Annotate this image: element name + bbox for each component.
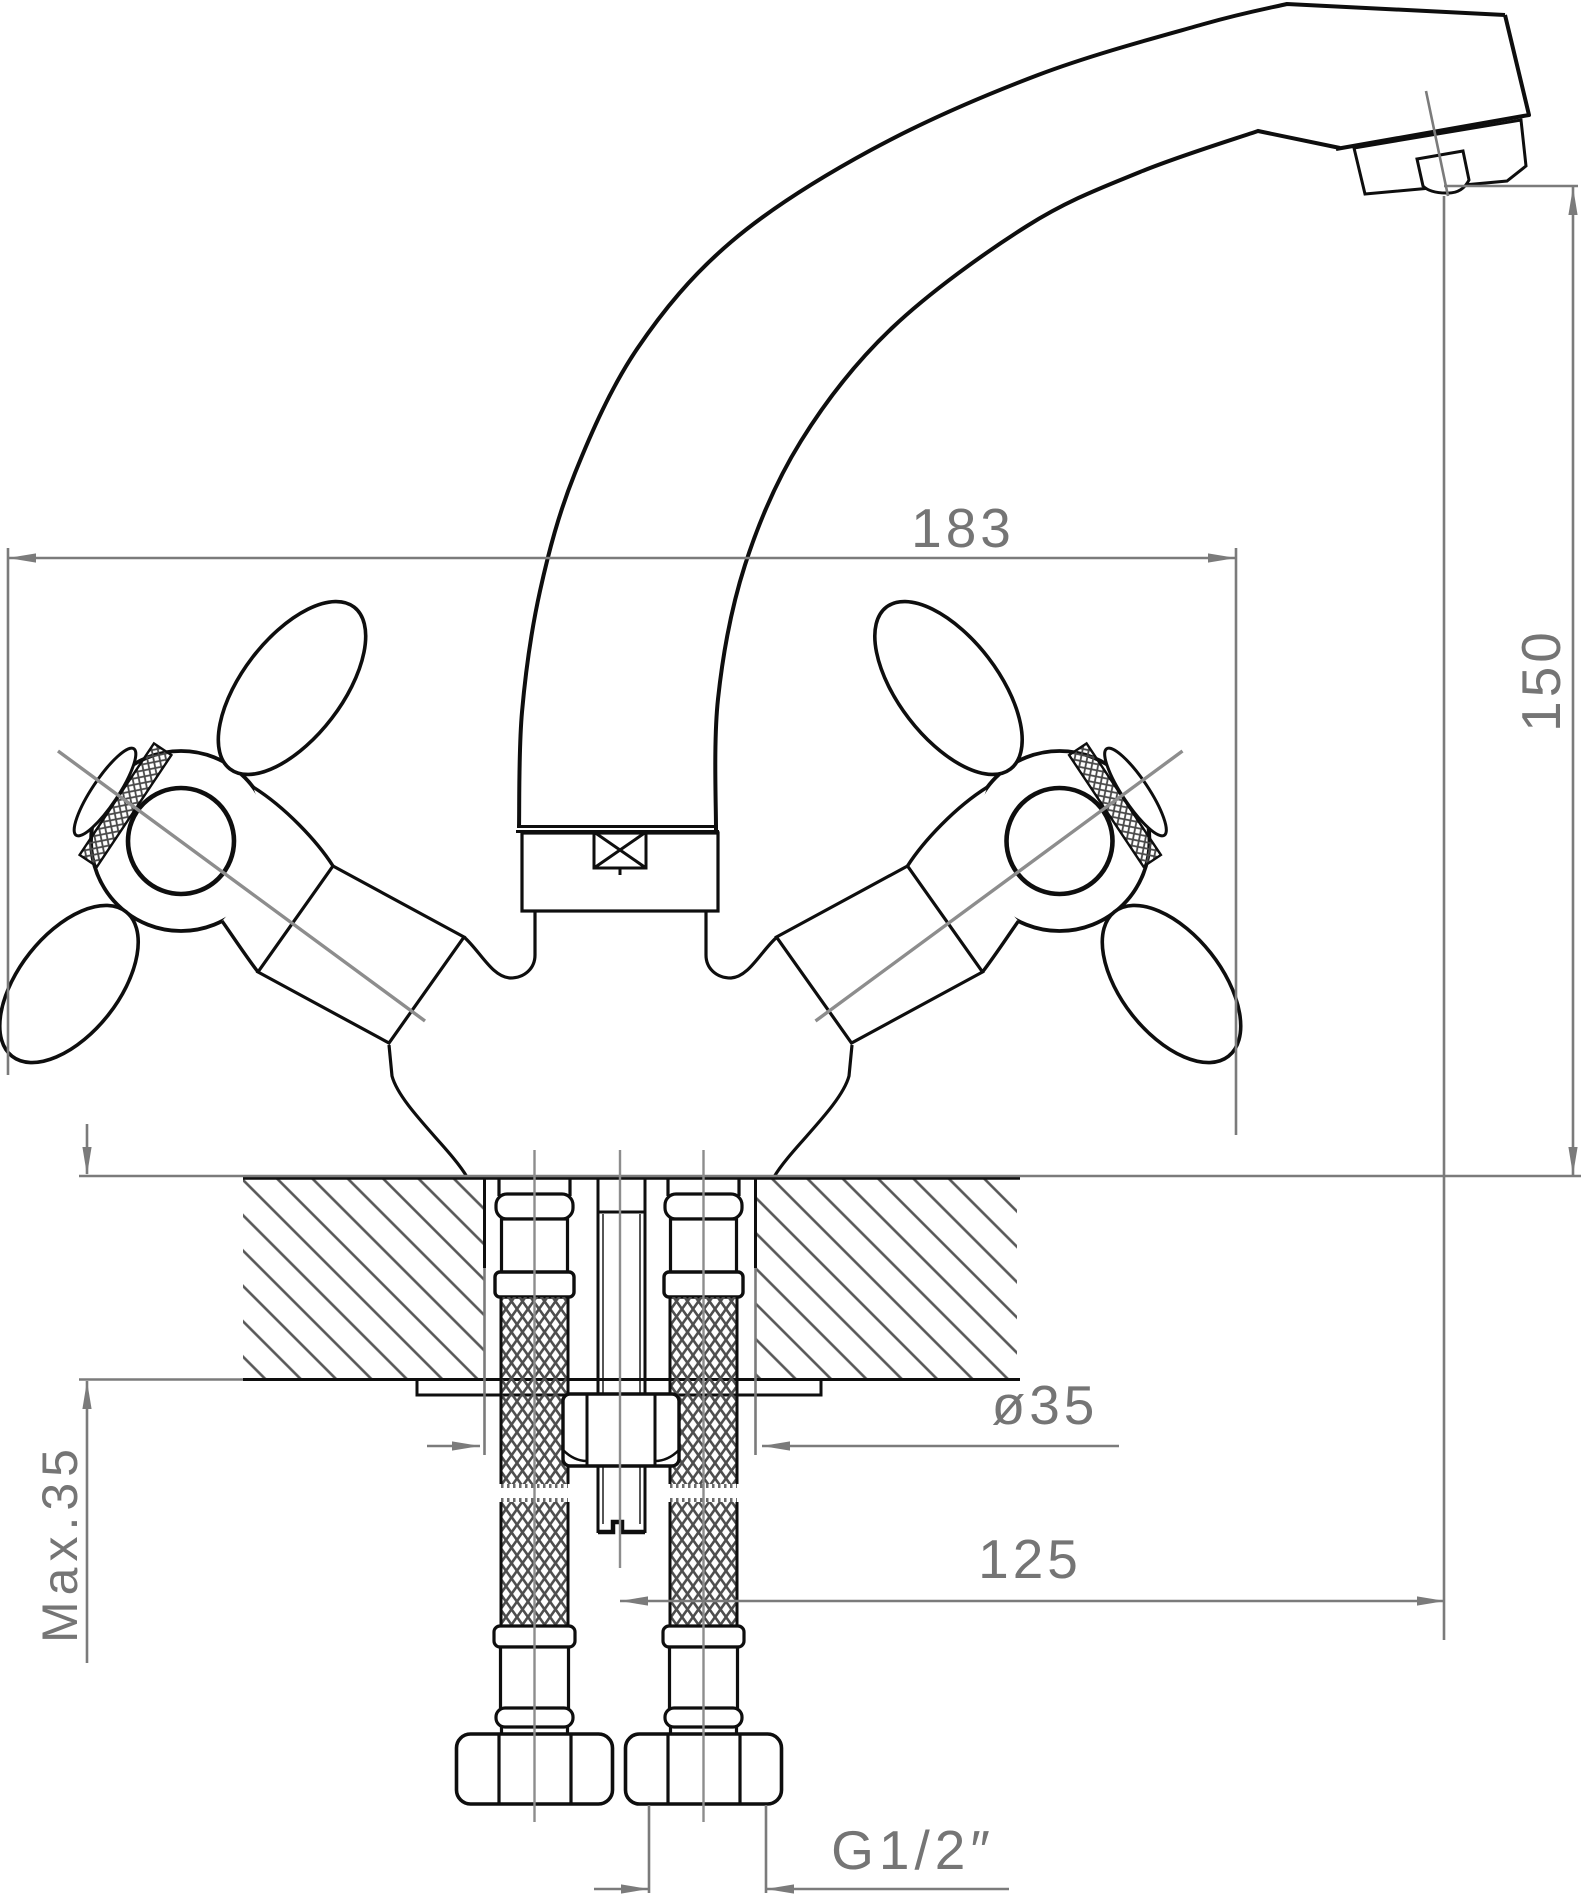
svg-text:Max.35: Max.35 [32, 1443, 88, 1643]
svg-text:150: 150 [1510, 628, 1572, 732]
svg-text:183: 183 [911, 497, 1015, 559]
svg-text:125: 125 [978, 1528, 1082, 1590]
svg-text:ø35: ø35 [992, 1374, 1099, 1436]
svg-text:G1/2″: G1/2″ [831, 1819, 995, 1881]
